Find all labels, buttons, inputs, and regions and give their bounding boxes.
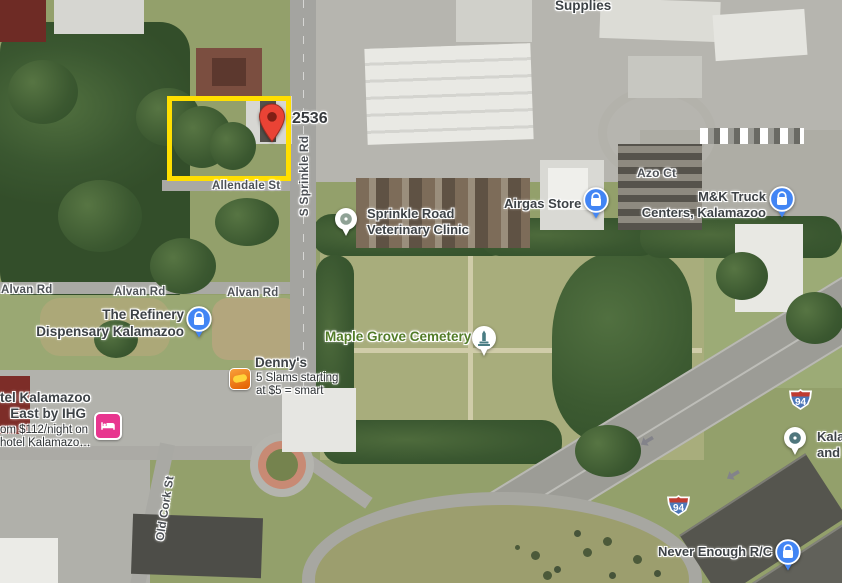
tree-cluster <box>58 180 142 252</box>
hotel-price-line: hotel Kalamazo… <box>0 437 86 450</box>
shopping-bag-pin-icon[interactable] <box>769 186 795 219</box>
destination-pin-icon[interactable] <box>258 103 286 143</box>
building <box>0 538 58 583</box>
poi-label-mk-truck[interactable]: M&K Truck Centers, Kalamazoo <box>640 189 766 220</box>
tree-cluster <box>8 60 78 124</box>
poi-label-airgas[interactable]: Airgas Store <box>504 196 581 211</box>
poi-label-line: Sprinkle Road <box>367 206 469 222</box>
parked-trucks-row <box>700 128 804 144</box>
partial-top-label: Supplies <box>555 0 611 13</box>
shopping-bag-pin-icon[interactable] <box>775 539 801 572</box>
poi-label-line: M&K Truck <box>640 189 766 205</box>
dennys-logo-icon[interactable] <box>229 368 251 390</box>
cemetery-monument-pin-icon[interactable] <box>471 325 497 357</box>
tree-cluster <box>575 425 641 477</box>
road-label-azo-ct: Azo Ct <box>637 166 676 180</box>
bed-glyph <box>99 417 117 435</box>
promo-line: at $5 = smart <box>256 385 338 398</box>
dennys-logo-swirl <box>232 374 247 384</box>
poi-label-never-enough[interactable]: Never Enough R/C <box>658 544 772 559</box>
terrain-dirt-patch <box>212 298 300 360</box>
tree-cluster <box>716 252 768 300</box>
poi-pin-icon[interactable] <box>783 426 807 456</box>
shopping-bag-pin-icon[interactable] <box>186 306 212 339</box>
road-label-alvan: Alvan Rd <box>1 284 52 296</box>
building <box>54 0 144 34</box>
lane-arrow-icon <box>724 467 741 483</box>
building-dark <box>131 514 263 579</box>
hotel-price-line: om $112/night on <box>0 424 86 437</box>
poi-label-line: and <box>817 445 842 461</box>
interstate-94-shield-icon: 94 <box>667 495 690 516</box>
road-label-sprinkle: S Sprinkle Rd <box>297 118 311 234</box>
poi-label-kalamazoo-clipped[interactable]: Kala and <box>817 429 842 460</box>
poi-label-veterinary[interactable]: Sprinkle Road Veterinary Clinic <box>367 206 469 238</box>
building-warehouse <box>364 43 533 145</box>
poi-label-dennys[interactable]: Denny's <box>255 355 307 370</box>
road-label-allendale: Allendale St <box>212 180 280 192</box>
satellite-map-viewport[interactable]: Supplies 2536 S Sprinkle Rd Allendale St… <box>0 0 842 583</box>
loop-brush-dots <box>515 545 520 550</box>
poi-label-line: tel Kalamazoo <box>0 389 86 406</box>
shield-number: 94 <box>789 389 812 410</box>
roundabout-island <box>266 449 298 481</box>
poi-label-line: Kala <box>817 429 842 445</box>
building-roof <box>212 58 246 86</box>
building-brown-roof <box>196 48 262 96</box>
shopping-bag-pin-icon[interactable] <box>583 187 609 220</box>
poi-label-line: Dispensary Kalamazoo <box>36 324 184 341</box>
building <box>628 56 702 98</box>
tree-cluster <box>786 292 842 344</box>
tree-cluster <box>215 198 279 246</box>
terrain-tree-row <box>322 420 562 464</box>
road-label-alvan: Alvan Rd <box>114 286 165 298</box>
poi-label-line: East by IHG <box>0 406 86 422</box>
building <box>456 0 532 42</box>
interstate-94-shield-icon: 94 <box>789 389 812 410</box>
poi-pin-icon[interactable] <box>334 207 358 237</box>
poi-label-hotel[interactable]: tel Kalamazoo East by IHG om $112/night … <box>0 389 86 450</box>
building-red-roof <box>0 0 46 42</box>
road-label-alvan: Alvan Rd <box>227 287 278 299</box>
promo-line: 5 Slams starting <box>256 372 338 385</box>
building <box>599 0 720 42</box>
poi-label-line: Centers, Kalamazoo <box>640 205 766 221</box>
building <box>713 9 808 61</box>
poi-label-line: The Refinery <box>36 307 184 324</box>
hotel-bed-icon[interactable] <box>94 412 122 440</box>
poi-label-maple-grove[interactable]: Maple Grove Cemetery <box>325 329 471 344</box>
poi-label-refinery[interactable]: The Refinery Dispensary Kalamazoo <box>36 307 184 340</box>
poi-label-line: Veterinary Clinic <box>367 222 469 238</box>
shield-number: 94 <box>667 495 690 516</box>
poi-promo-dennys: 5 Slams starting at $5 = smart <box>256 372 338 398</box>
